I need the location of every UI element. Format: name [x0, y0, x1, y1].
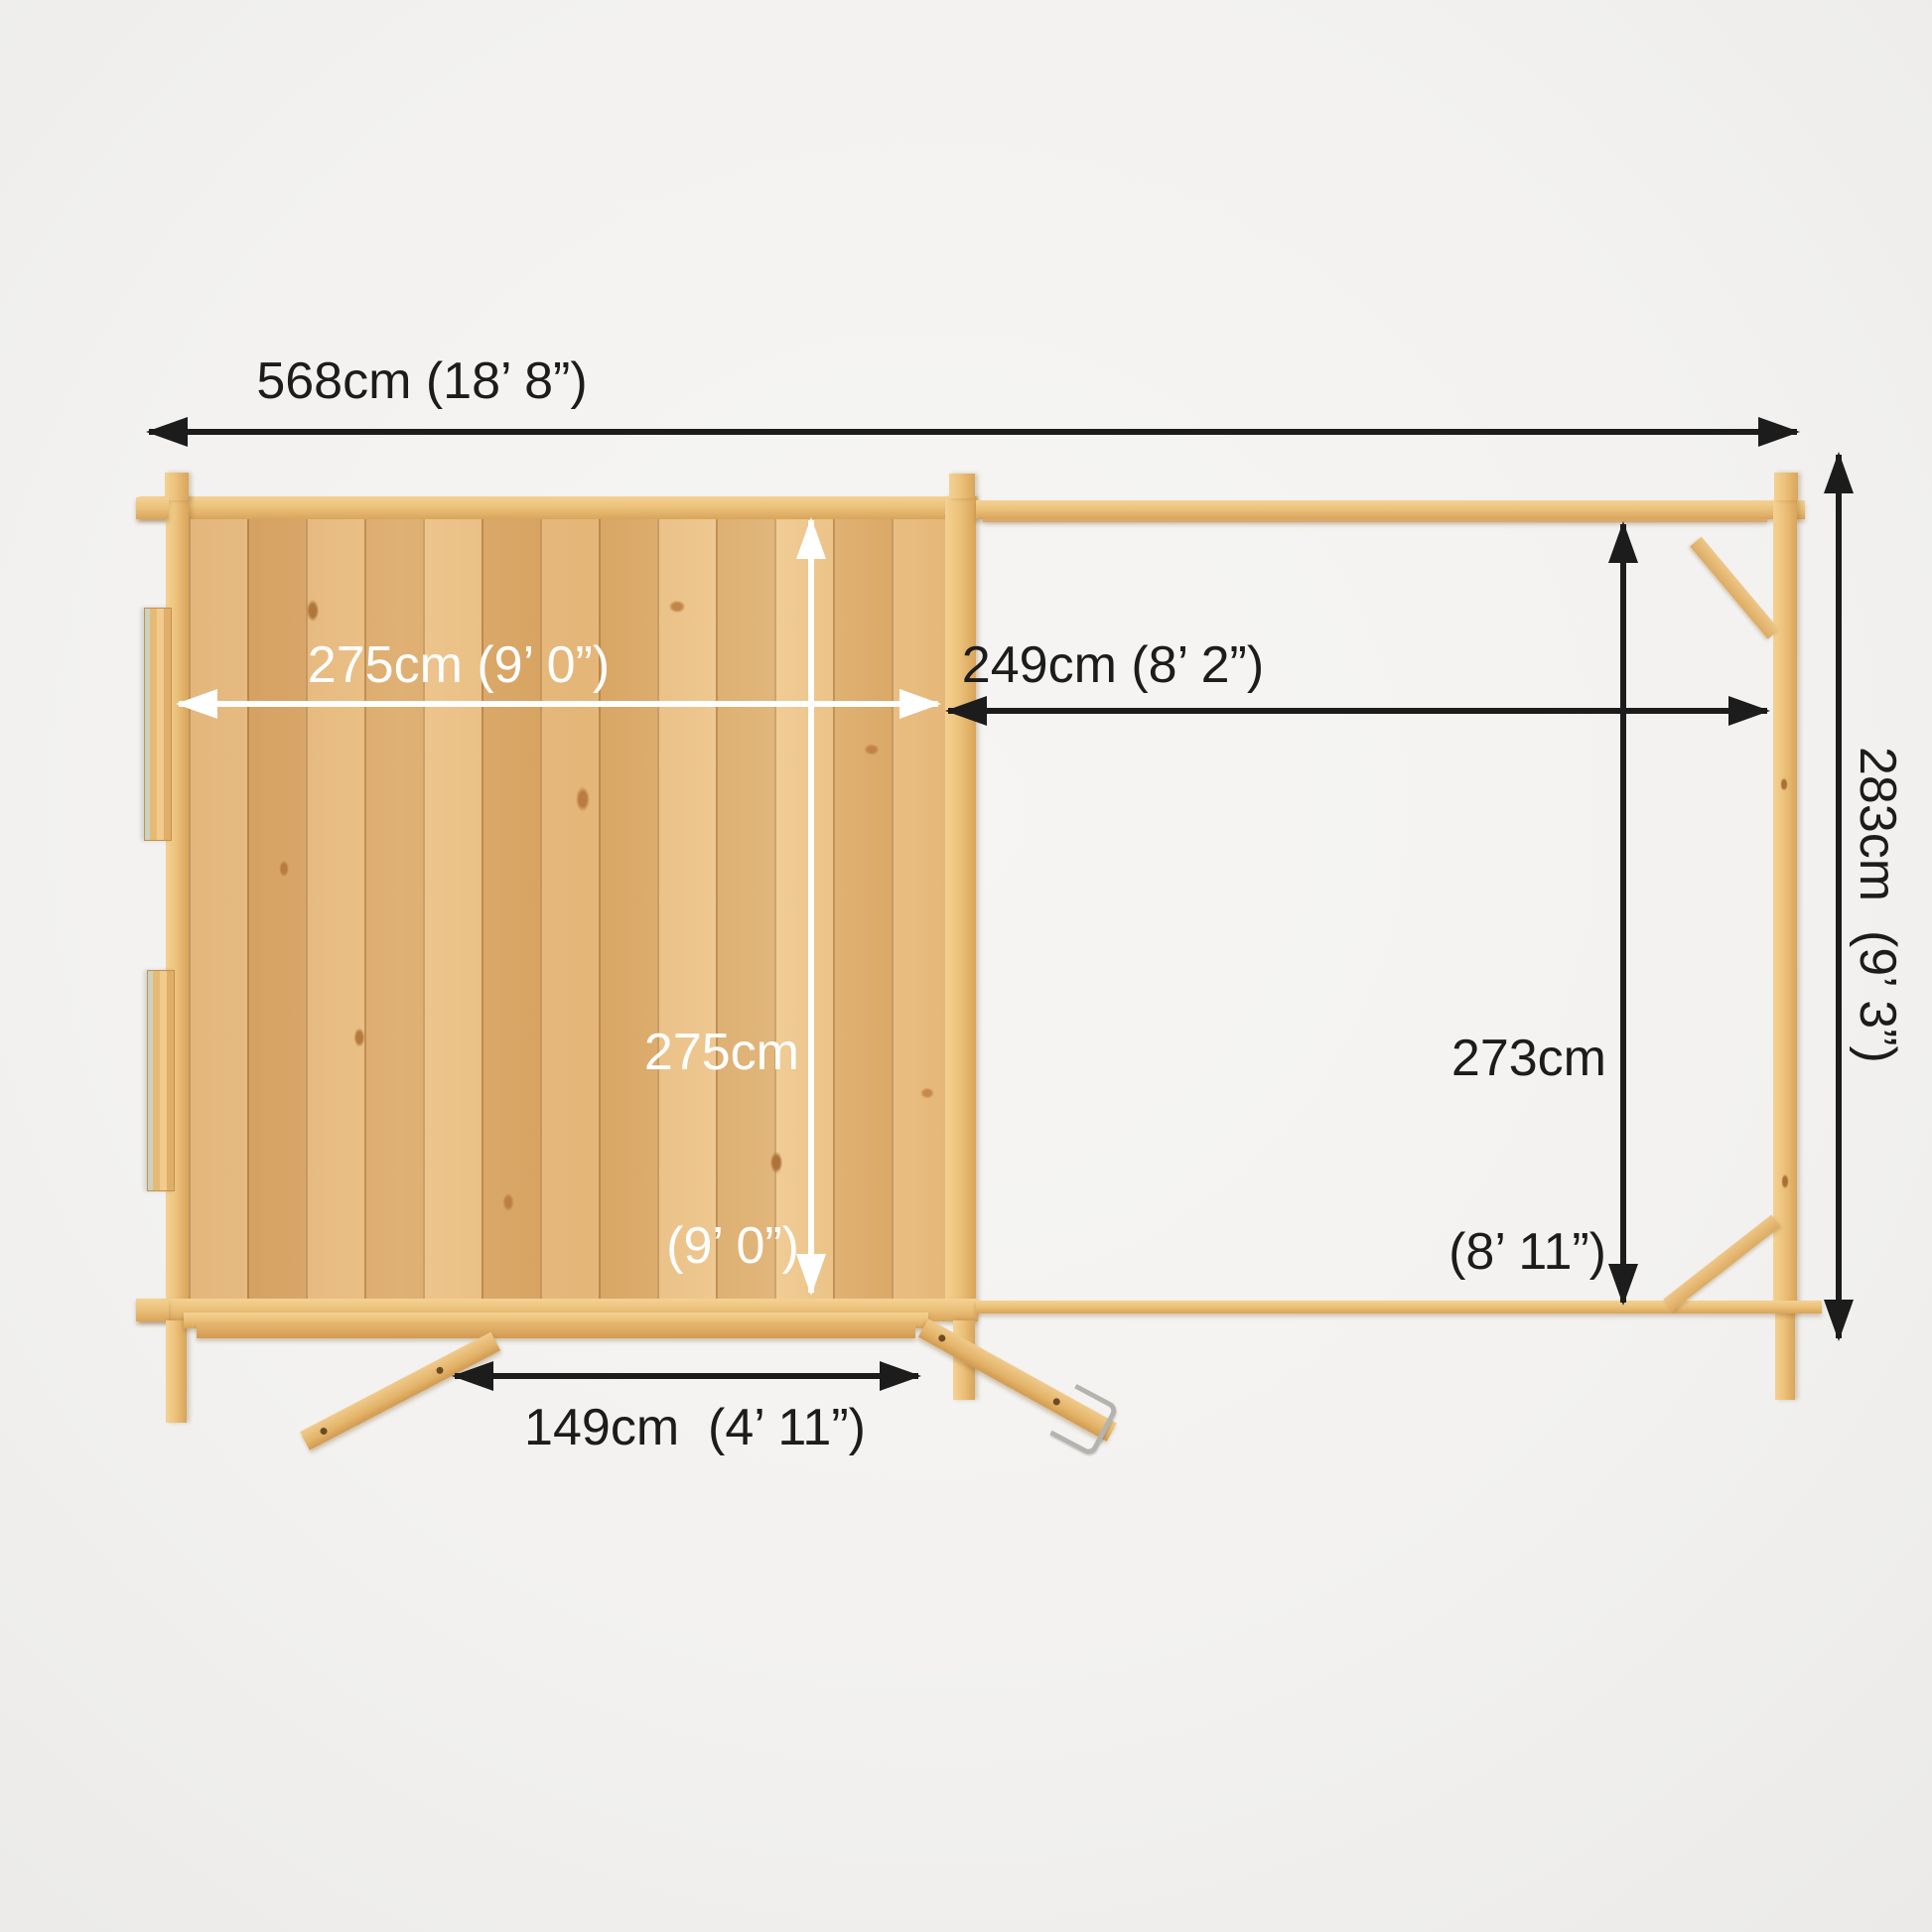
cabin-depth-label: 275cm (9’ 0”): [644, 892, 799, 1408]
canopy-right-post-bottom-stub: [1775, 1312, 1795, 1400]
door-sill-board-lower: [197, 1324, 915, 1338]
cabin-right-wall: [945, 496, 976, 1320]
corner-post-bottom-left: [166, 1320, 187, 1423]
canopy-right-post: [1773, 500, 1797, 1312]
canopy-depth-label-line1: 273cm: [1449, 1027, 1606, 1091]
side-window-top: [144, 608, 172, 841]
overall-depth-arrow: [1836, 455, 1842, 1338]
side-window-bottom: [147, 970, 175, 1191]
canopy-width-arrow: [948, 708, 1767, 714]
cabin-width-arrow: [179, 701, 938, 707]
canopy-depth-label: 273cm (8’ 11”): [1449, 897, 1606, 1414]
cabin-depth-arrow: [808, 520, 814, 1293]
door-width-label: 149cm (4’ 11”): [524, 1396, 866, 1460]
corner-post-top-left: [165, 473, 189, 500]
overall-width-label: 568cm (18’ 8”): [256, 349, 587, 414]
canopy-right-post-top-stub: [1774, 473, 1798, 500]
canopy-width-label: 249cm (8’ 2”): [962, 633, 1264, 698]
canopy-brace-bottom-right: [1663, 1215, 1780, 1311]
cabin-depth-label-line2: (9’ 0”): [644, 1214, 799, 1279]
diagram-canvas: 568cm (18’ 8”) 275cm (9’ 0”) 249cm (8’ 2…: [0, 0, 1932, 1932]
canopy-top-rail: [983, 514, 1767, 522]
canopy-bottom-beam: [976, 1301, 1822, 1313]
cabin-width-label: 275cm (9’ 0”): [308, 633, 610, 698]
canopy-depth-arrow: [1620, 524, 1626, 1303]
canopy-brace-top-right: [1690, 537, 1779, 639]
open-door-left-leaf: [300, 1332, 500, 1450]
corner-beam-top-left: [136, 497, 169, 519]
overall-width-arrow: [149, 429, 1797, 435]
cabin-top-wall: [139, 496, 978, 519]
wood-knots: [1773, 500, 1797, 1312]
divider-post-top-stub: [949, 474, 975, 498]
overall-depth-label: 283cm (9’ 3”): [1845, 747, 1909, 1063]
cabin-depth-label-line1: 275cm: [644, 1021, 799, 1085]
corner-beam-bottom-left: [136, 1299, 169, 1321]
canopy-depth-label-line2: (8’ 11”): [1449, 1220, 1606, 1285]
